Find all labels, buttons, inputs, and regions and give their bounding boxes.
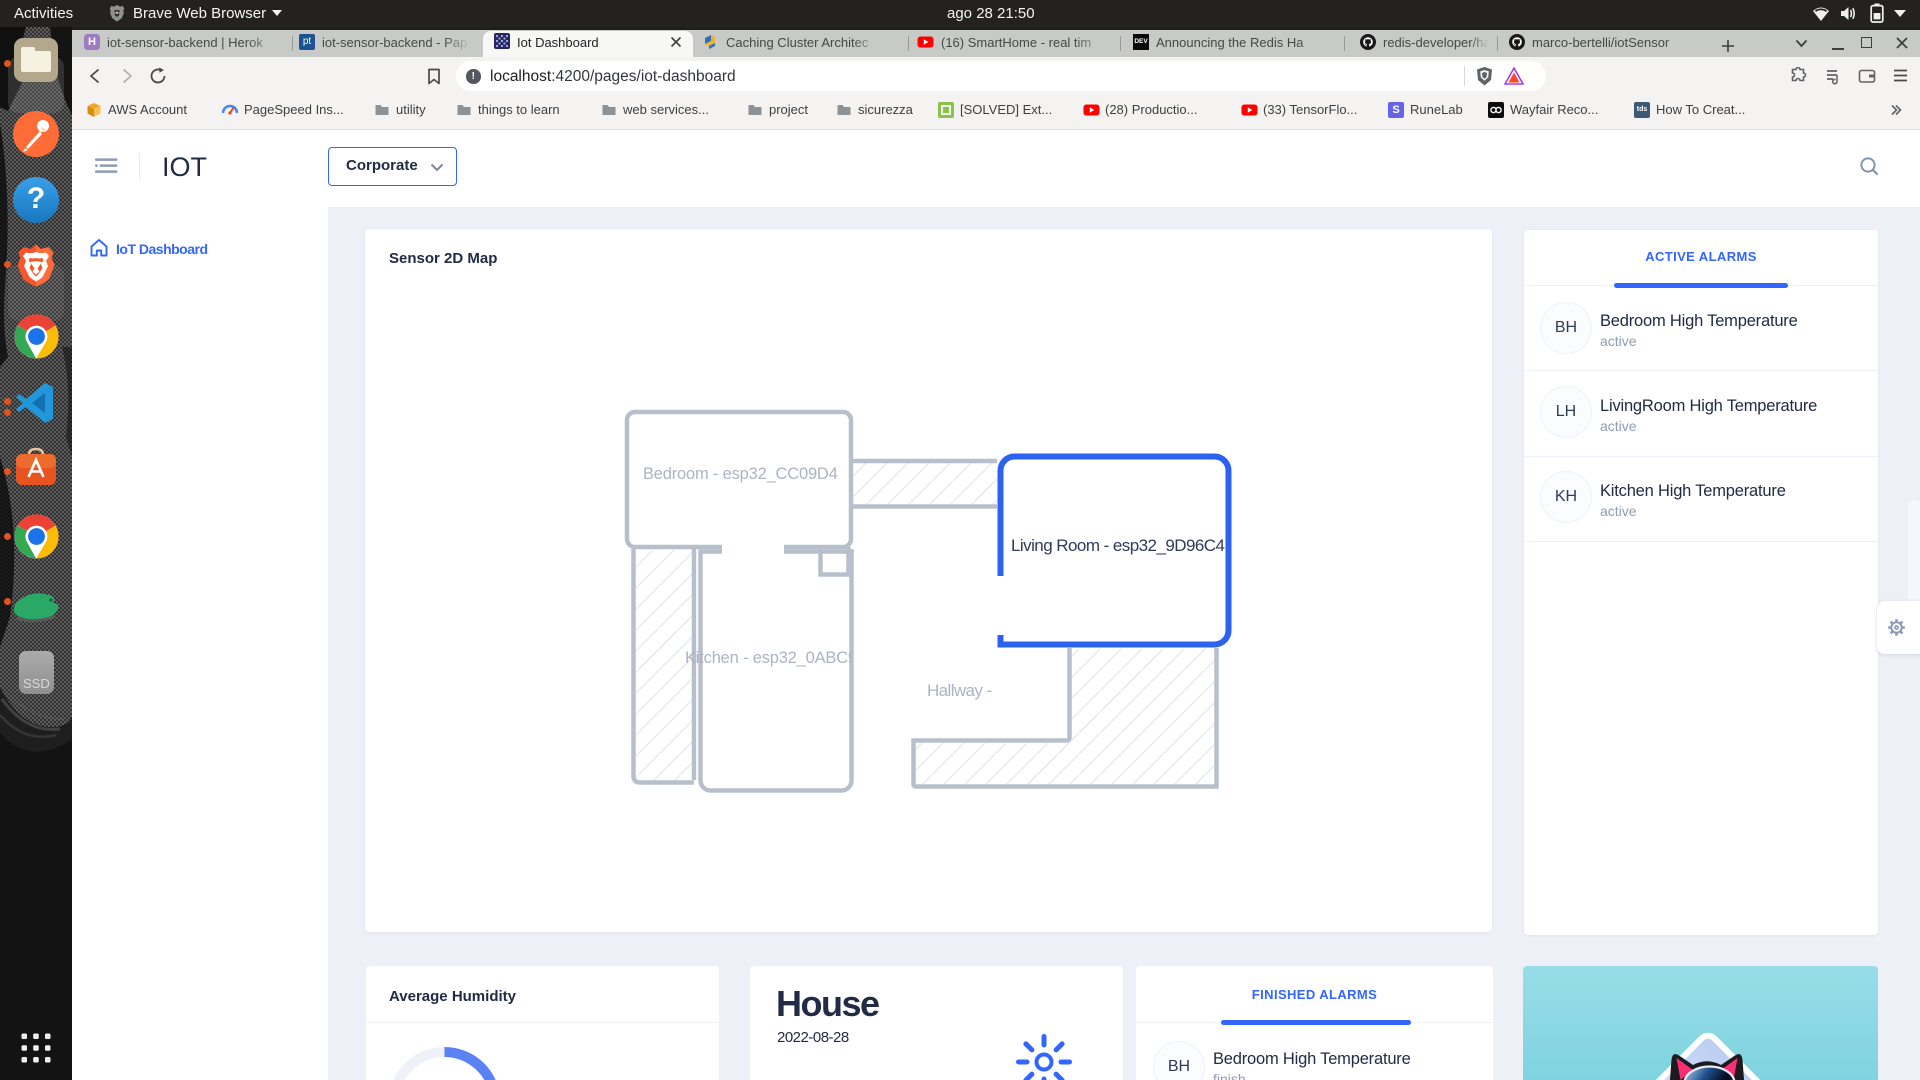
svg-text:Living Room - esp32_9D96C4: Living Room - esp32_9D96C4 bbox=[1011, 536, 1225, 555]
svg-text:Bedroom - esp32_CC09D4: Bedroom - esp32_CC09D4 bbox=[643, 465, 838, 483]
svg-text:Kitchen - esp32_0ABC9F: Kitchen - esp32_0ABC9F bbox=[685, 649, 867, 667]
svg-text:Hallway -: Hallway - bbox=[927, 681, 992, 700]
